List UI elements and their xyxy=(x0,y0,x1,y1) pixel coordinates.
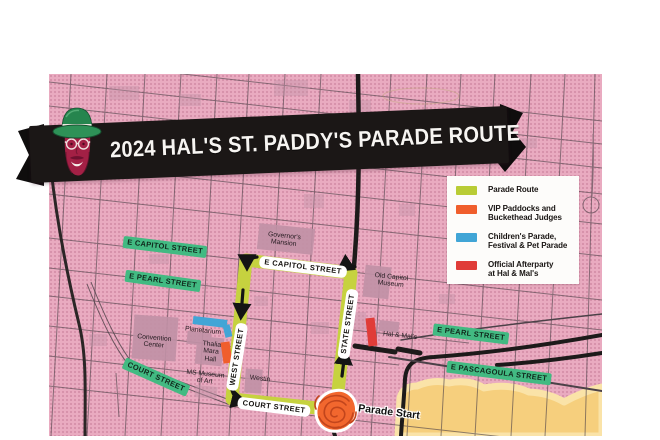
parade-route-swatch xyxy=(456,186,477,195)
legend-item-childrens-parade: Children's Parade,Festival & Pet Parade xyxy=(456,232,573,251)
map-legend: Parade Route VIP Paddocks andBuckethead … xyxy=(447,176,579,284)
legend-item-parade-route: Parade Route xyxy=(456,185,573,195)
afterparty-bar xyxy=(370,318,373,346)
childrens-parade-swatch xyxy=(456,233,477,242)
building-label-convention-center: ConventionCenter xyxy=(136,333,172,351)
hal-mascot-icon xyxy=(52,104,102,180)
page-title: 2024 HAL'S ST. PADDY'S PARADE ROUTE xyxy=(110,121,521,164)
afterparty-swatch xyxy=(456,261,477,270)
bowler-hat-icon xyxy=(53,108,101,138)
vip-paddocks-swatch xyxy=(456,205,477,214)
vip-paddocks-bar xyxy=(225,342,228,363)
building-label-thalia-mara-hall: ThaliaMaraHall xyxy=(201,340,222,364)
legend-item-vip-paddocks: VIP Paddocks andBuckethead Judges xyxy=(456,204,573,223)
parade-route-map-page: { "banner": { "title": "2024 HAL'S ST. P… xyxy=(0,0,660,440)
park-area xyxy=(398,382,602,436)
rose-icon xyxy=(315,390,357,431)
legend-item-afterparty: Official Afterpartyat Hal & Mal's xyxy=(456,260,573,279)
